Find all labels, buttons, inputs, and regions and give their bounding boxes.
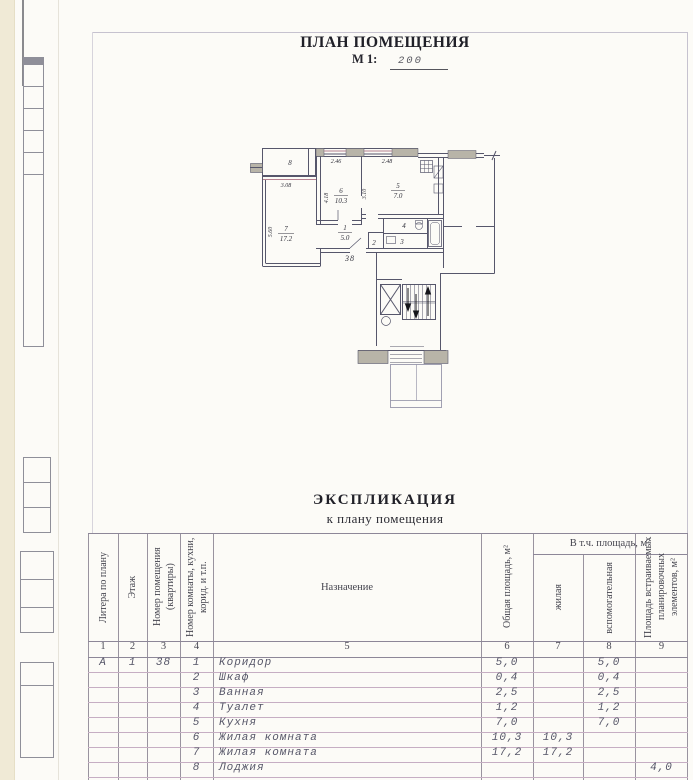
column-number: 1 <box>88 641 118 657</box>
cell-purpose: Лоджия <box>213 762 487 777</box>
explication-table: Литера по плану Этаж Номер помещения (кв… <box>88 533 688 780</box>
header-floor: Этаж <box>118 533 147 641</box>
dim-418: 4.18 <box>323 193 330 204</box>
cell-purpose: Туалет <box>213 702 487 717</box>
stair-direction-arrows <box>405 286 431 319</box>
scale-value: 200 <box>398 55 423 67</box>
dim-248: 2.48 <box>382 158 393 165</box>
cell-living <box>533 657 583 672</box>
cell-purpose: Жилая комната <box>213 732 487 747</box>
apartment-number: 38 <box>344 254 355 263</box>
table-row: А 1 38 1 Коридор 5,0 5,0 <box>88 657 688 672</box>
column-number: 3 <box>147 641 180 657</box>
cell-auxiliary <box>583 747 635 762</box>
column-number: 5 <box>213 641 481 657</box>
room3-number: 3 <box>399 238 404 246</box>
scan-edge-strip <box>0 0 15 780</box>
cell-purpose: Шкаф <box>213 672 487 687</box>
cell-builtin <box>635 672 688 687</box>
cell-living <box>533 687 583 702</box>
room7-number: 7 <box>284 225 288 233</box>
room6-number: 6 <box>339 187 343 195</box>
floor-plan-drawing: 8 2.46 2.48 3.08 4.18 3.10 5.60 6 10.3 5… <box>250 136 502 428</box>
room5-number: 5 <box>396 182 400 190</box>
page-border-left <box>92 32 93 533</box>
dim-560: 5.60 <box>268 227 274 238</box>
cell-room-number: 6 <box>180 732 213 747</box>
cell-purpose: Коридор <box>213 657 487 672</box>
header-living-area: жилая <box>533 554 583 641</box>
header-room-number: Номер комнаты, кухни, корид. и т.п. <box>180 533 213 641</box>
cell-room-number: 7 <box>180 747 213 762</box>
explication-title: ЭКСПЛИКАЦИЯ <box>250 492 520 509</box>
cell-auxiliary: 0,4 <box>583 672 635 687</box>
adjacent-page-box-b <box>20 662 54 758</box>
cell-builtin <box>635 732 688 747</box>
garbage-chute <box>382 317 391 326</box>
washbasin-icon <box>387 237 396 244</box>
cell-living <box>533 717 583 732</box>
header-total-area: Общая площадь, м² <box>481 533 533 641</box>
cell-room-number: 4 <box>180 702 213 717</box>
cell-living <box>533 672 583 687</box>
dim-308: 3.08 <box>280 183 292 189</box>
page-border-top <box>92 32 687 33</box>
plan-stairwell <box>358 252 448 408</box>
column-number: 6 <box>481 641 533 657</box>
column-number: 8 <box>583 641 635 657</box>
cell-room-number: 5 <box>180 717 213 732</box>
cell-living <box>533 702 583 717</box>
room1-area: 5.0 <box>341 234 350 242</box>
cell-litera: А <box>88 657 118 672</box>
table-row: 3 Ванная 2,5 2,5 <box>88 687 688 702</box>
header-purpose: Назначение <box>213 533 481 641</box>
cell-builtin <box>635 702 688 717</box>
header-auxiliary-area: вспомогательная <box>583 554 635 641</box>
header-builtin-area: Площадь встраиваемых планировочных элеме… <box>635 533 688 641</box>
cell-auxiliary <box>583 732 635 747</box>
page-title: ПЛАН ПОМЕЩЕНИЯ <box>250 34 520 52</box>
room7-area: 17.2 <box>280 235 293 243</box>
adjacent-page-ladder-strip <box>23 57 44 347</box>
explication-subtitle: к плану помещения <box>250 511 520 527</box>
plan-walls <box>250 149 500 274</box>
table-row: 7 Жилая комната 17,2 17,2 <box>88 747 688 762</box>
plan-labels: 8 2.46 2.48 3.08 4.18 3.10 5.60 6 10.3 5… <box>268 158 406 263</box>
cell-total: 1,2 <box>481 702 533 717</box>
scale-underline <box>390 69 448 70</box>
table-row: 8 Лоджия 4,0 <box>88 762 688 777</box>
room2-number: 2 <box>372 239 376 247</box>
column-number: 2 <box>118 641 147 657</box>
cell-auxiliary: 1,2 <box>583 702 635 717</box>
cell-living: 10,3 <box>533 732 583 747</box>
page-fold-line <box>58 0 59 780</box>
adjacent-page-cells <box>23 457 51 533</box>
table-row: 2 Шкаф 0,4 0,4 <box>88 672 688 687</box>
cell-floor: 1 <box>118 657 147 672</box>
scale-label: М 1: <box>352 52 377 67</box>
column-number: 7 <box>533 641 583 657</box>
cell-auxiliary <box>583 762 635 777</box>
toilet-icon <box>416 223 423 230</box>
cell-total: 0,4 <box>481 672 533 687</box>
room6-area: 10.3 <box>335 197 348 205</box>
cell-auxiliary: 2,5 <box>583 687 635 702</box>
row-line <box>88 777 688 778</box>
cell-builtin <box>635 687 688 702</box>
cell-builtin <box>635 657 688 672</box>
cell-room-number: 1 <box>180 657 213 672</box>
room8-number: 8 <box>288 159 292 167</box>
cell-purpose: Ванная <box>213 687 487 702</box>
cell-total: 7,0 <box>481 717 533 732</box>
cell-builtin <box>635 747 688 762</box>
room5-area: 7.0 <box>394 192 403 200</box>
adjacent-page-box-a <box>20 551 54 633</box>
dim-310: 3.10 <box>362 189 368 201</box>
cell-living <box>533 762 583 777</box>
table-row: 4 Туалет 1,2 1,2 <box>88 702 688 717</box>
table-row: 6 Жилая комната 10,3 10,3 <box>88 732 688 747</box>
table-row: 5 Кухня 7,0 7,0 <box>88 717 688 732</box>
cell-builtin <box>635 717 688 732</box>
cell-builtin: 4,0 <box>635 762 688 777</box>
header-litera: Литера по плану <box>88 533 118 641</box>
cell-purpose: Кухня <box>213 717 487 732</box>
dim-246: 2.46 <box>331 158 342 165</box>
header-apartment-number: Номер помещения (квартиры) <box>147 533 180 641</box>
cell-auxiliary: 5,0 <box>583 657 635 672</box>
room4-number: 4 <box>402 222 406 230</box>
cell-purpose: Жилая комната <box>213 747 487 762</box>
stove-icon <box>421 161 433 173</box>
cell-room-number: 2 <box>180 672 213 687</box>
cell-total: 10,3 <box>481 732 533 747</box>
cell-apartment: 38 <box>147 657 180 672</box>
cell-total: 2,5 <box>481 687 533 702</box>
cell-total: 5,0 <box>481 657 533 672</box>
room1-number: 1 <box>343 224 347 232</box>
cell-auxiliary: 7,0 <box>583 717 635 732</box>
cell-total <box>481 762 533 777</box>
cell-total: 17,2 <box>481 747 533 762</box>
entrance-stoop <box>391 365 442 408</box>
cell-living: 17,2 <box>533 747 583 762</box>
cell-room-number: 8 <box>180 762 213 777</box>
scanned-document-page: ПЛАН ПОМЕЩЕНИЯ М 1: 200 <box>0 0 693 780</box>
cell-room-number: 3 <box>180 687 213 702</box>
column-number: 4 <box>180 641 213 657</box>
column-number: 9 <box>635 641 688 657</box>
